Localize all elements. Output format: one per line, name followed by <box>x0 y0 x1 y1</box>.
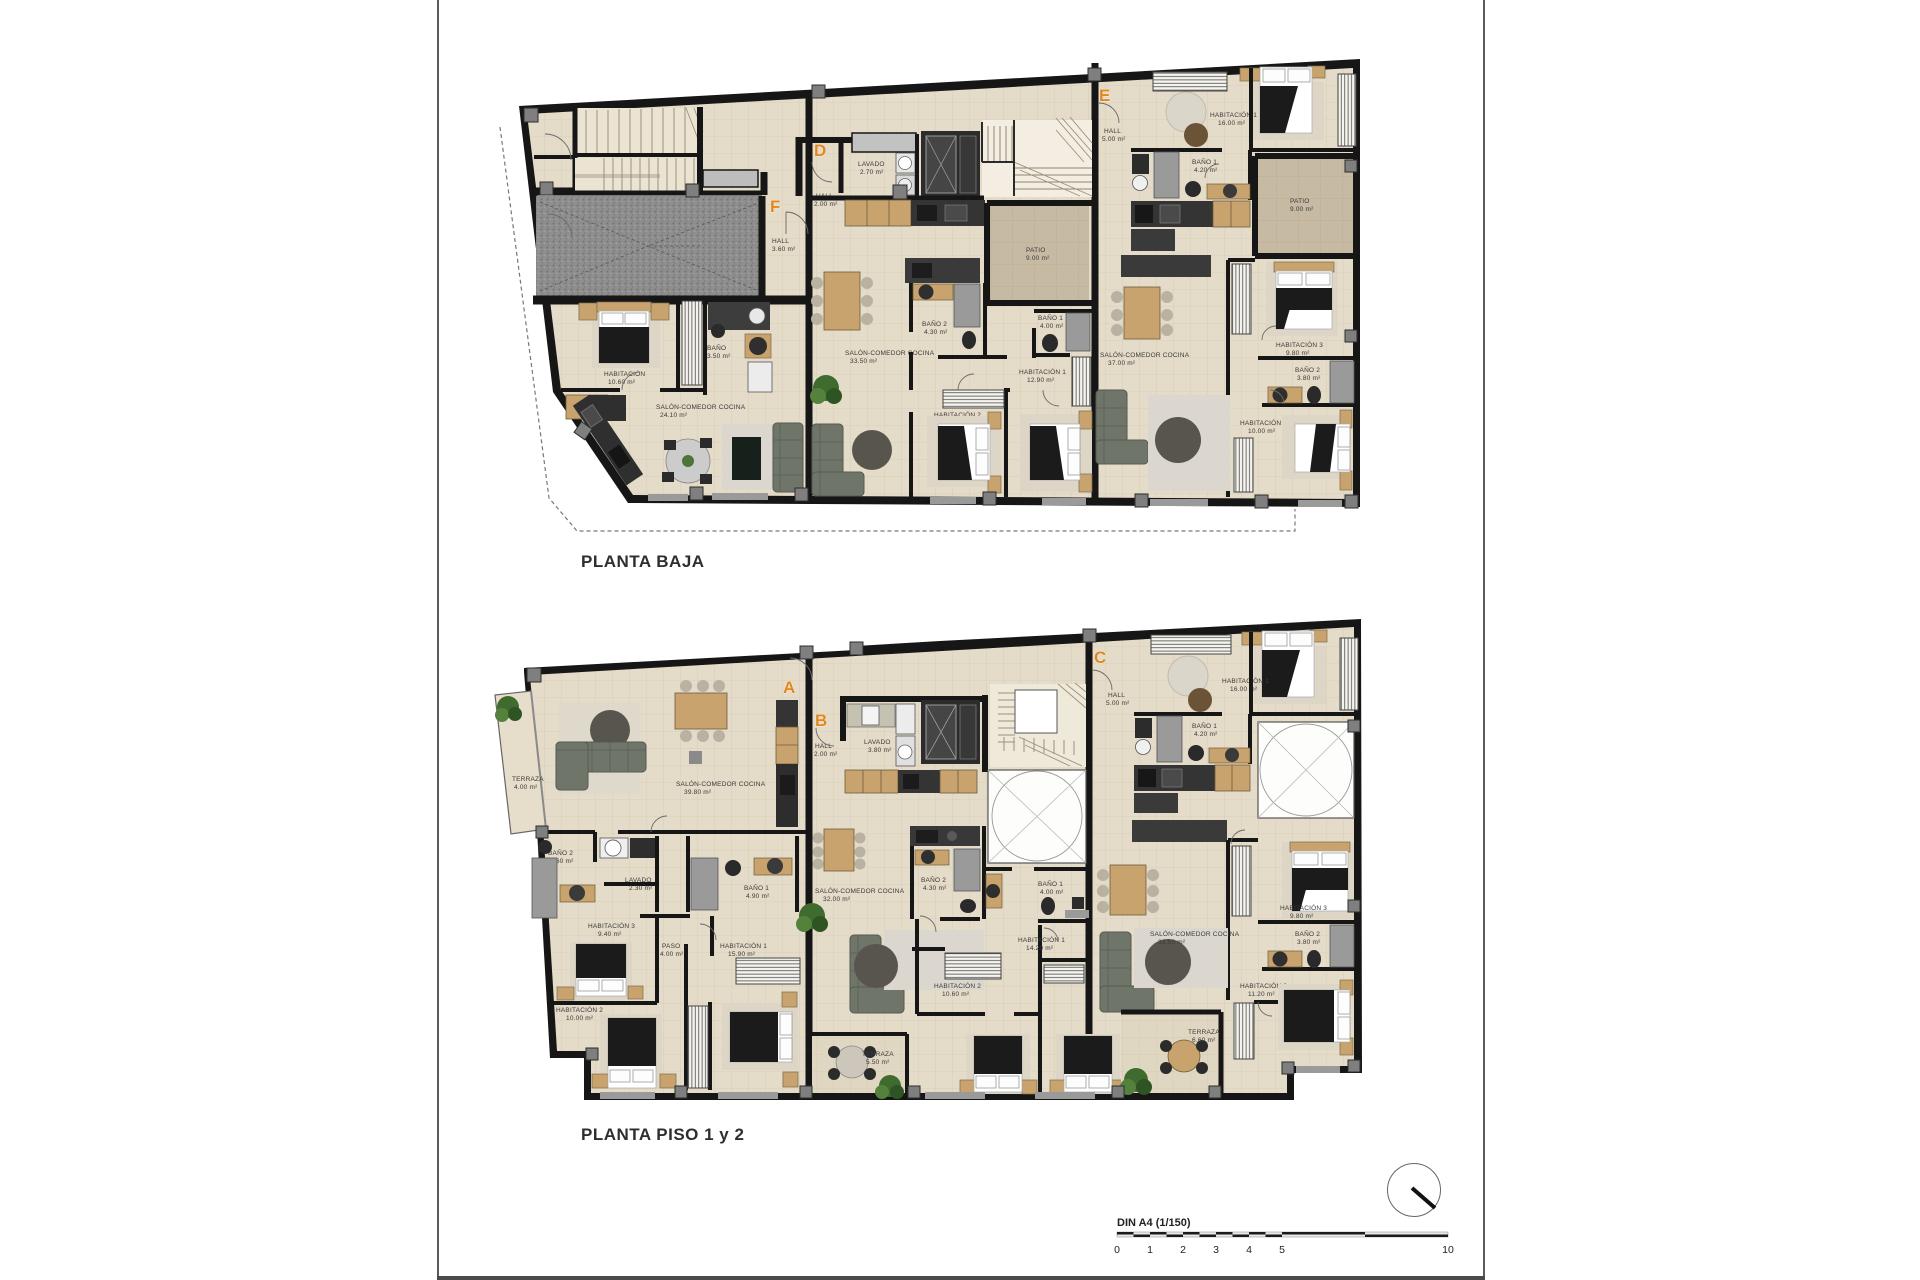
svg-text:4.90 m²: 4.90 m² <box>746 893 770 900</box>
svg-text:PASO: PASO <box>662 943 680 950</box>
svg-text:10.60 m²: 10.60 m² <box>608 379 636 386</box>
svg-text:SALÓN-COMEDOR COCINA: SALÓN-COMEDOR COCINA <box>656 402 746 411</box>
svg-text:PATIO: PATIO <box>1026 247 1046 254</box>
svg-text:9.40 m²: 9.40 m² <box>598 931 622 938</box>
svg-text:SALÓN-COMEDOR COCINA: SALÓN-COMEDOR COCINA <box>1150 929 1240 938</box>
svg-text:2.00 m²: 2.00 m² <box>814 751 838 758</box>
svg-text:HABITACIÓN 2: HABITACIÓN 2 <box>934 981 981 990</box>
svg-text:HALL: HALL <box>1104 128 1121 135</box>
svg-text:PLANTA PISO 1 y 2: PLANTA PISO 1 y 2 <box>581 1125 744 1144</box>
svg-text:PLANTA BAJA: PLANTA BAJA <box>581 552 705 571</box>
svg-text:4.00 m²: 4.00 m² <box>1040 323 1064 330</box>
svg-text:D: D <box>814 141 826 160</box>
svg-text:HABITACIÓN 1: HABITACIÓN 1 <box>720 941 767 950</box>
svg-text:11.20 m²: 11.20 m² <box>1248 991 1275 998</box>
svg-text:5.50 m²: 5.50 m² <box>866 1059 890 1066</box>
svg-text:HABITACIÓN 3: HABITACIÓN 3 <box>1280 903 1327 912</box>
svg-text:BAÑO 1: BAÑO 1 <box>1038 879 1063 888</box>
svg-text:4: 4 <box>1246 1244 1252 1256</box>
svg-text:DIN A4 (1/150): DIN A4 (1/150) <box>1117 1217 1191 1229</box>
svg-text:16.00 m²: 16.00 m² <box>1230 686 1258 693</box>
svg-text:BAÑO 2: BAÑO 2 <box>921 875 946 884</box>
svg-text:10.00 m²: 10.00 m² <box>566 1015 594 1022</box>
svg-text:5.00 m²: 5.00 m² <box>1106 700 1130 707</box>
svg-text:LAVADO: LAVADO <box>625 877 652 884</box>
svg-text:2.00 m²: 2.00 m² <box>814 201 838 208</box>
svg-text:4.00 m²: 4.00 m² <box>514 784 538 791</box>
svg-text:3.80 m²: 3.80 m² <box>1297 939 1321 946</box>
svg-text:14.20 m²: 14.20 m² <box>1026 945 1054 952</box>
svg-text:A: A <box>783 678 795 697</box>
svg-text:TERRAZA: TERRAZA <box>512 776 544 783</box>
svg-text:5: 5 <box>1279 1244 1285 1256</box>
svg-text:3.80 m²: 3.80 m² <box>1297 375 1321 382</box>
svg-text:24.10 m²: 24.10 m² <box>660 412 688 419</box>
svg-text:15.90 m²: 15.90 m² <box>728 951 756 958</box>
svg-text:BAÑO 1: BAÑO 1 <box>1038 313 1063 322</box>
svg-text:2.70 m²: 2.70 m² <box>860 169 884 176</box>
svg-text:32.00 m²: 32.00 m² <box>823 896 851 903</box>
svg-text:BAÑO 1: BAÑO 1 <box>1192 721 1217 730</box>
svg-text:BAÑO 2: BAÑO 2 <box>1295 929 1320 938</box>
svg-text:F: F <box>770 197 780 216</box>
svg-text:SALÓN-COMEDOR COCINA: SALÓN-COMEDOR COCINA <box>815 886 905 895</box>
svg-text:2.30 m²: 2.30 m² <box>629 885 653 892</box>
svg-text:SALÓN-COMEDOR COCINA: SALÓN-COMEDOR COCINA <box>676 779 766 788</box>
svg-text:HABITACIÓN 3: HABITACIÓN 3 <box>1276 340 1323 349</box>
svg-text:SALÓN-COMEDOR COCINA: SALÓN-COMEDOR COCINA <box>1100 350 1190 359</box>
svg-text:4.30 m²: 4.30 m² <box>923 885 947 892</box>
svg-text:B: B <box>815 711 827 730</box>
svg-text:HALL: HALL <box>772 238 789 245</box>
svg-text:16.00 m²: 16.00 m² <box>1218 120 1246 127</box>
svg-text:TERRAZA: TERRAZA <box>1188 1029 1220 1036</box>
svg-text:5.00 m²: 5.00 m² <box>1102 136 1126 143</box>
svg-text:HABITACIÓN: HABITACIÓN <box>604 369 645 378</box>
svg-text:HABITACIÓN 1: HABITACIÓN 1 <box>1019 367 1066 376</box>
svg-text:9.80 m²: 9.80 m² <box>1290 913 1314 920</box>
svg-text:10.00 m²: 10.00 m² <box>1248 428 1276 435</box>
svg-text:4.00 m²: 4.00 m² <box>1040 889 1064 896</box>
svg-text:BAÑO: BAÑO <box>707 343 726 352</box>
svg-text:3.60 m²: 3.60 m² <box>772 246 796 253</box>
svg-text:10: 10 <box>1442 1244 1454 1256</box>
svg-text:9.00 m²: 9.00 m² <box>1290 206 1314 213</box>
svg-text:37.00 m²: 37.00 m² <box>1108 360 1136 367</box>
svg-text:9.80 m²: 9.80 m² <box>1286 350 1310 357</box>
svg-text:6.60 m²: 6.60 m² <box>1192 1037 1216 1044</box>
svg-text:3: 3 <box>1213 1244 1219 1256</box>
svg-text:SALÓN-COMEDOR COCINA: SALÓN-COMEDOR COCINA <box>845 348 935 357</box>
svg-text:0: 0 <box>1114 1244 1120 1256</box>
svg-text:HABITACIÓN 2: HABITACIÓN 2 <box>1240 418 1287 427</box>
svg-text:33.50 m²: 33.50 m² <box>1158 939 1186 946</box>
svg-text:BAÑO 1: BAÑO 1 <box>744 883 769 892</box>
svg-text:BAÑO 2: BAÑO 2 <box>922 319 947 328</box>
svg-text:10.60 m²: 10.60 m² <box>942 991 970 998</box>
svg-text:E: E <box>1099 86 1110 105</box>
svg-text:PATIO: PATIO <box>1290 198 1310 205</box>
svg-text:3.50 m²: 3.50 m² <box>707 353 731 360</box>
svg-text:2: 2 <box>1180 1244 1186 1256</box>
svg-text:39.80 m²: 39.80 m² <box>684 789 712 796</box>
svg-text:3.80 m²: 3.80 m² <box>868 747 892 754</box>
svg-text:C: C <box>1094 648 1106 667</box>
svg-text:HALL: HALL <box>815 743 832 750</box>
svg-text:9.00 m²: 9.00 m² <box>1026 255 1050 262</box>
svg-text:4.00 m²: 4.00 m² <box>660 951 684 958</box>
svg-text:HABITACIÓN 3: HABITACIÓN 3 <box>588 921 635 930</box>
svg-text:12.90 m²: 12.90 m² <box>1027 377 1055 384</box>
svg-text:BAÑO 2: BAÑO 2 <box>1295 365 1320 374</box>
svg-text:1: 1 <box>1147 1244 1153 1256</box>
svg-text:4.30 m²: 4.30 m² <box>924 329 948 336</box>
svg-text:LAVADO: LAVADO <box>864 739 891 746</box>
svg-text:LAVADO: LAVADO <box>858 161 885 168</box>
svg-text:33.50 m²: 33.50 m² <box>850 358 878 365</box>
svg-text:HABITACIÓN 2: HABITACIÓN 2 <box>556 1005 603 1014</box>
svg-text:HABITACIÓN 1: HABITACIÓN 1 <box>1222 676 1269 685</box>
svg-text:4.20 m²: 4.20 m² <box>1194 731 1218 738</box>
svg-text:TERRAZA: TERRAZA <box>862 1051 894 1058</box>
svg-text:BAÑO 2: BAÑO 2 <box>548 848 573 857</box>
svg-text:HALL: HALL <box>1108 692 1125 699</box>
